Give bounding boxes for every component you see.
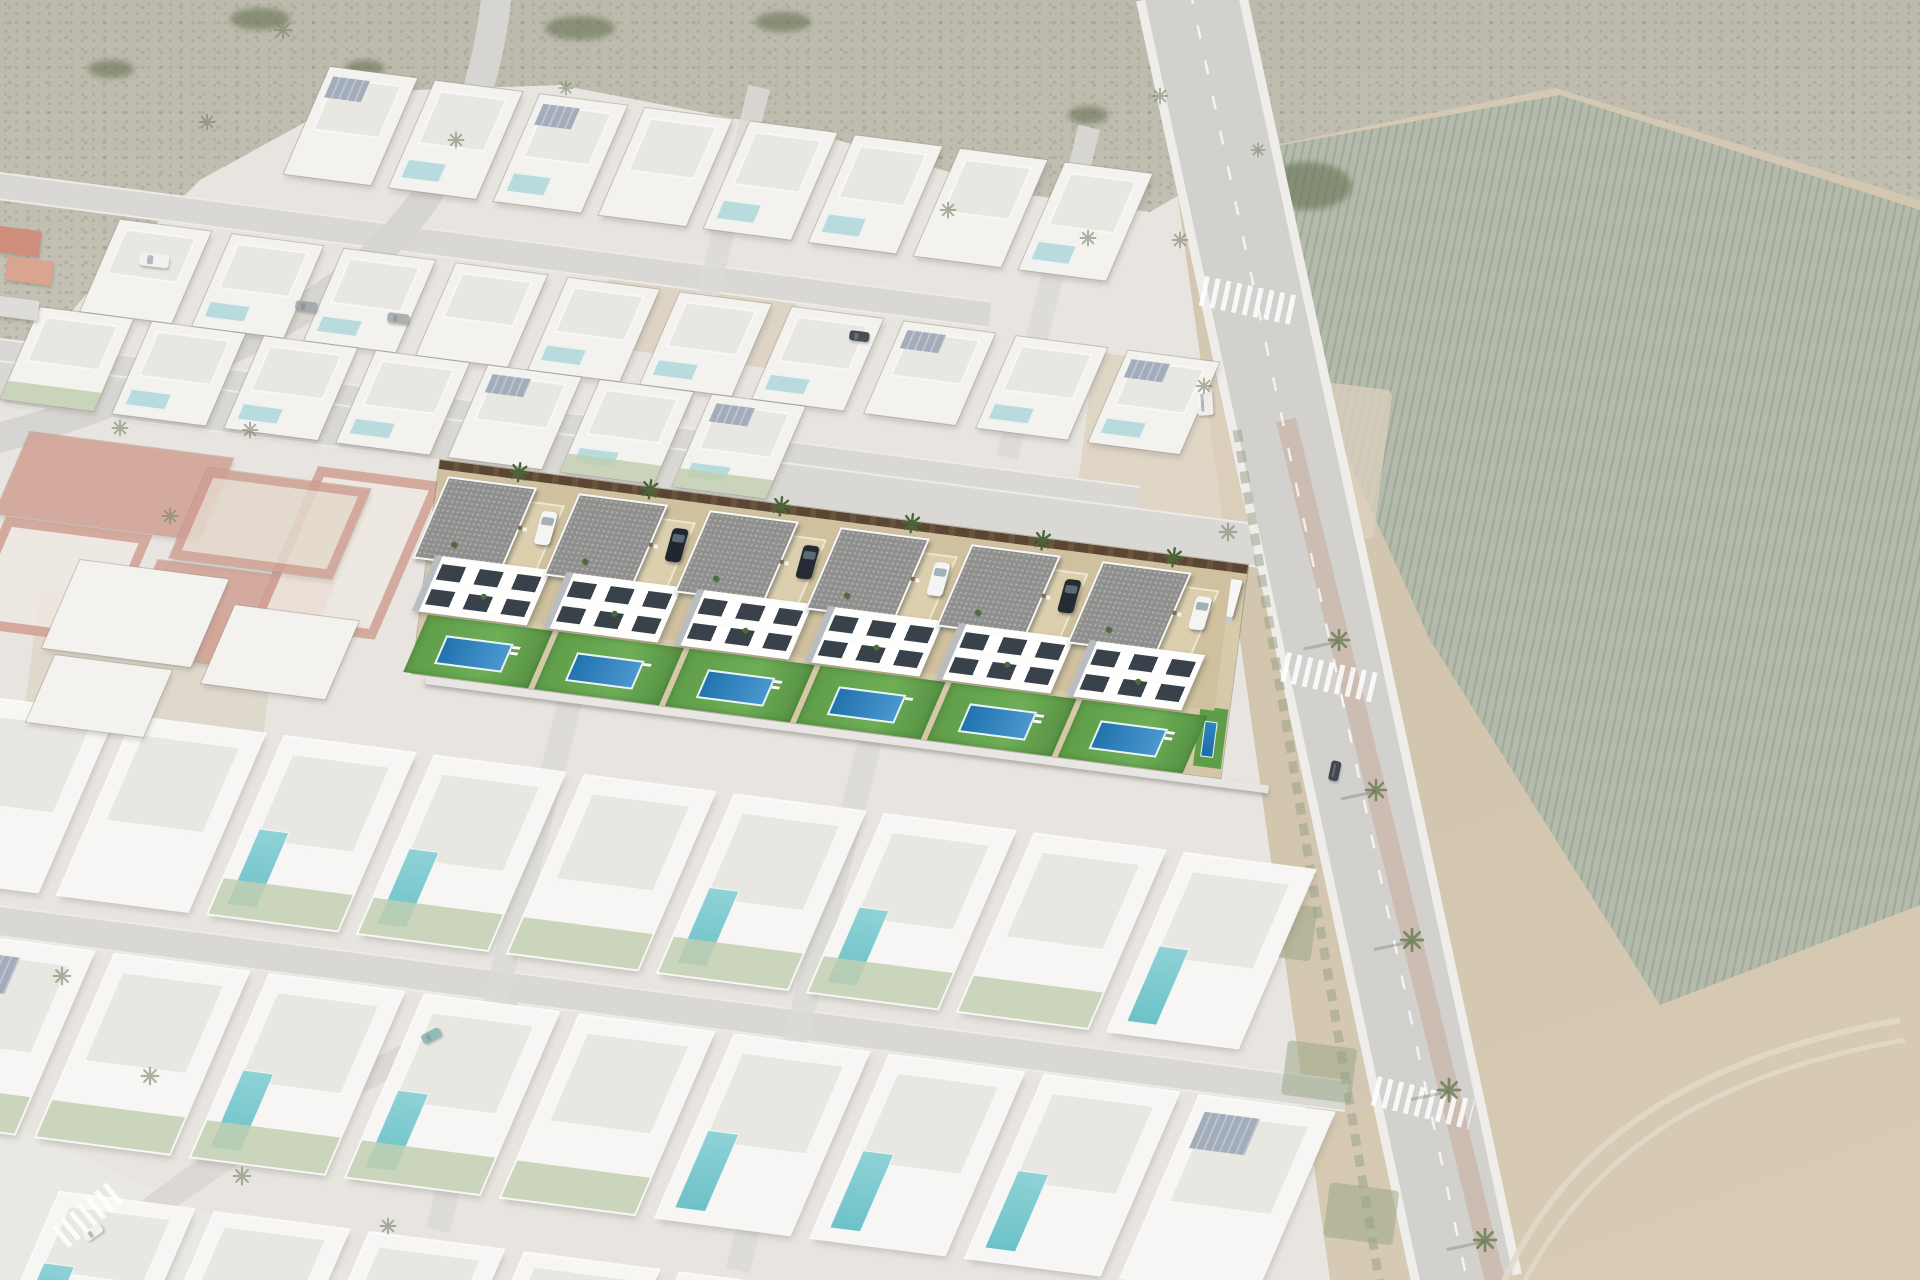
vehicle-windshield: [87, 1230, 94, 1238]
villa-roof: [195, 1225, 328, 1280]
garden-plot: [1281, 1040, 1358, 1104]
sun-lounger: [643, 663, 652, 667]
vehicle-windshield: [1196, 602, 1209, 611]
villa-pool: [434, 635, 514, 672]
vehicle-windshield: [1331, 763, 1336, 777]
palm-tree: [447, 131, 465, 154]
palm-tree: [273, 20, 293, 45]
villa-pool: [764, 374, 811, 396]
terrace-furniture: [649, 543, 653, 547]
villa-roof: [505, 1266, 638, 1280]
villa-pool: [565, 652, 645, 689]
palm-tree: [111, 419, 129, 442]
palm-tree: [1250, 142, 1266, 163]
upper-windows: [567, 581, 675, 609]
villa-roof: [548, 1032, 691, 1136]
palm-tree: [1218, 522, 1238, 547]
villa-pool: [988, 403, 1035, 425]
sun-lounger: [771, 686, 780, 690]
villa-roof: [627, 118, 718, 180]
villa-pool: [696, 669, 776, 706]
villa-pool: [1100, 417, 1147, 439]
villa-roof: [586, 389, 679, 444]
villa-pool: [820, 213, 867, 237]
villa-roof: [26, 316, 119, 371]
villa-roof: [83, 971, 226, 1075]
palm-tree: [1030, 528, 1055, 558]
villa-roof: [837, 145, 928, 207]
palm-tree: [379, 1217, 397, 1240]
sun-lounger: [512, 646, 521, 650]
palm-tree: [1151, 87, 1169, 110]
palm-tree: [1161, 545, 1186, 575]
palm-tree: [198, 113, 216, 136]
aerial-photo: [0, 0, 1920, 1280]
sun-lounger: [1033, 720, 1042, 724]
villa-pool: [348, 418, 396, 440]
upper-windows: [698, 598, 806, 626]
villa-roof: [442, 272, 533, 327]
vehicle-windshield: [854, 332, 859, 339]
villa-roof: [732, 131, 823, 193]
lower-windows: [425, 589, 533, 617]
terrace-furniture: [518, 526, 522, 530]
lower-windows: [818, 640, 926, 668]
palm-tree: [1171, 231, 1189, 254]
villa-roof: [1004, 850, 1143, 951]
vehicle-windshield: [541, 517, 554, 526]
upper-windows: [959, 632, 1067, 660]
villa-pool: [1030, 241, 1077, 265]
sun-lounger: [509, 652, 518, 656]
palm-tree: [1327, 628, 1351, 657]
villa-roof: [218, 243, 309, 298]
vehicle-windshield: [934, 568, 947, 577]
palm-tree: [161, 507, 179, 530]
tire-track: [1500, 1020, 1900, 1280]
villa-pool: [505, 172, 552, 196]
palm-tree: [52, 966, 72, 991]
villa-pool: [316, 316, 363, 338]
vehicle-windshield: [425, 1033, 432, 1041]
sun-lounger: [1164, 737, 1173, 741]
container: [0, 226, 42, 257]
sun-lounger: [1035, 714, 1044, 718]
vehicle-windshield: [392, 314, 397, 321]
lower-windows: [556, 606, 664, 634]
palm-tree: [140, 1066, 160, 1091]
villa-pool: [652, 359, 699, 381]
villa-roof: [1047, 172, 1138, 234]
sun-lounger: [1166, 731, 1175, 735]
vehicle-windshield: [300, 302, 305, 309]
lower-windows: [949, 657, 1057, 685]
villa-pool: [1088, 720, 1168, 757]
villa-roof: [250, 345, 343, 400]
palm-tree: [232, 1166, 252, 1191]
palm-tree: [1195, 377, 1213, 400]
vehicle-windshield: [672, 534, 685, 543]
villa-roof: [778, 316, 869, 371]
villa-roof: [666, 301, 757, 356]
palm-tree: [558, 80, 574, 101]
lower-windows: [687, 623, 795, 651]
garden-plot: [1323, 1182, 1400, 1246]
sun-lounger: [904, 697, 913, 701]
villa-pool: [124, 389, 172, 411]
villa-pool: [827, 686, 907, 723]
palm-tree: [506, 460, 531, 490]
palm-tree: [1472, 1227, 1498, 1258]
villa-pool: [958, 703, 1038, 740]
villa-roof: [104, 733, 243, 834]
villa-pool: [204, 301, 251, 323]
terrace-furniture: [1172, 611, 1176, 615]
palm-tree: [1364, 778, 1388, 807]
palm-tree: [939, 201, 957, 224]
vehicle-windshield: [146, 255, 153, 265]
palm-tree: [1079, 229, 1097, 252]
palm-tree: [768, 494, 793, 524]
upper-windows: [1090, 649, 1198, 677]
terrace-furniture: [1041, 594, 1045, 598]
villa-roof: [330, 257, 421, 312]
palm-tree: [899, 511, 924, 541]
sun-lounger: [773, 680, 782, 684]
villa-roof: [350, 1246, 483, 1280]
palm-tree: [241, 421, 259, 444]
palm-tree: [1436, 1077, 1462, 1108]
villa-roof: [554, 286, 645, 341]
villa-roof: [1002, 345, 1093, 400]
terrace-furniture: [910, 577, 914, 581]
villa-roof: [138, 330, 231, 385]
villa-roof: [362, 359, 455, 414]
villa-pool: [540, 345, 587, 367]
terrace-furniture: [779, 560, 783, 564]
villa-roof: [554, 792, 693, 893]
vehicle-windshield: [803, 551, 816, 560]
palm-tree: [1399, 927, 1425, 958]
villa-pool: [400, 159, 447, 183]
villa-pool: [715, 200, 762, 224]
highlighted-villa-6: [1075, 555, 1232, 776]
vehicle-windshield: [1065, 585, 1078, 594]
upper-windows: [828, 615, 936, 643]
upper-windows: [436, 564, 544, 592]
lower-windows: [1079, 674, 1187, 702]
palm-tree: [637, 477, 662, 507]
